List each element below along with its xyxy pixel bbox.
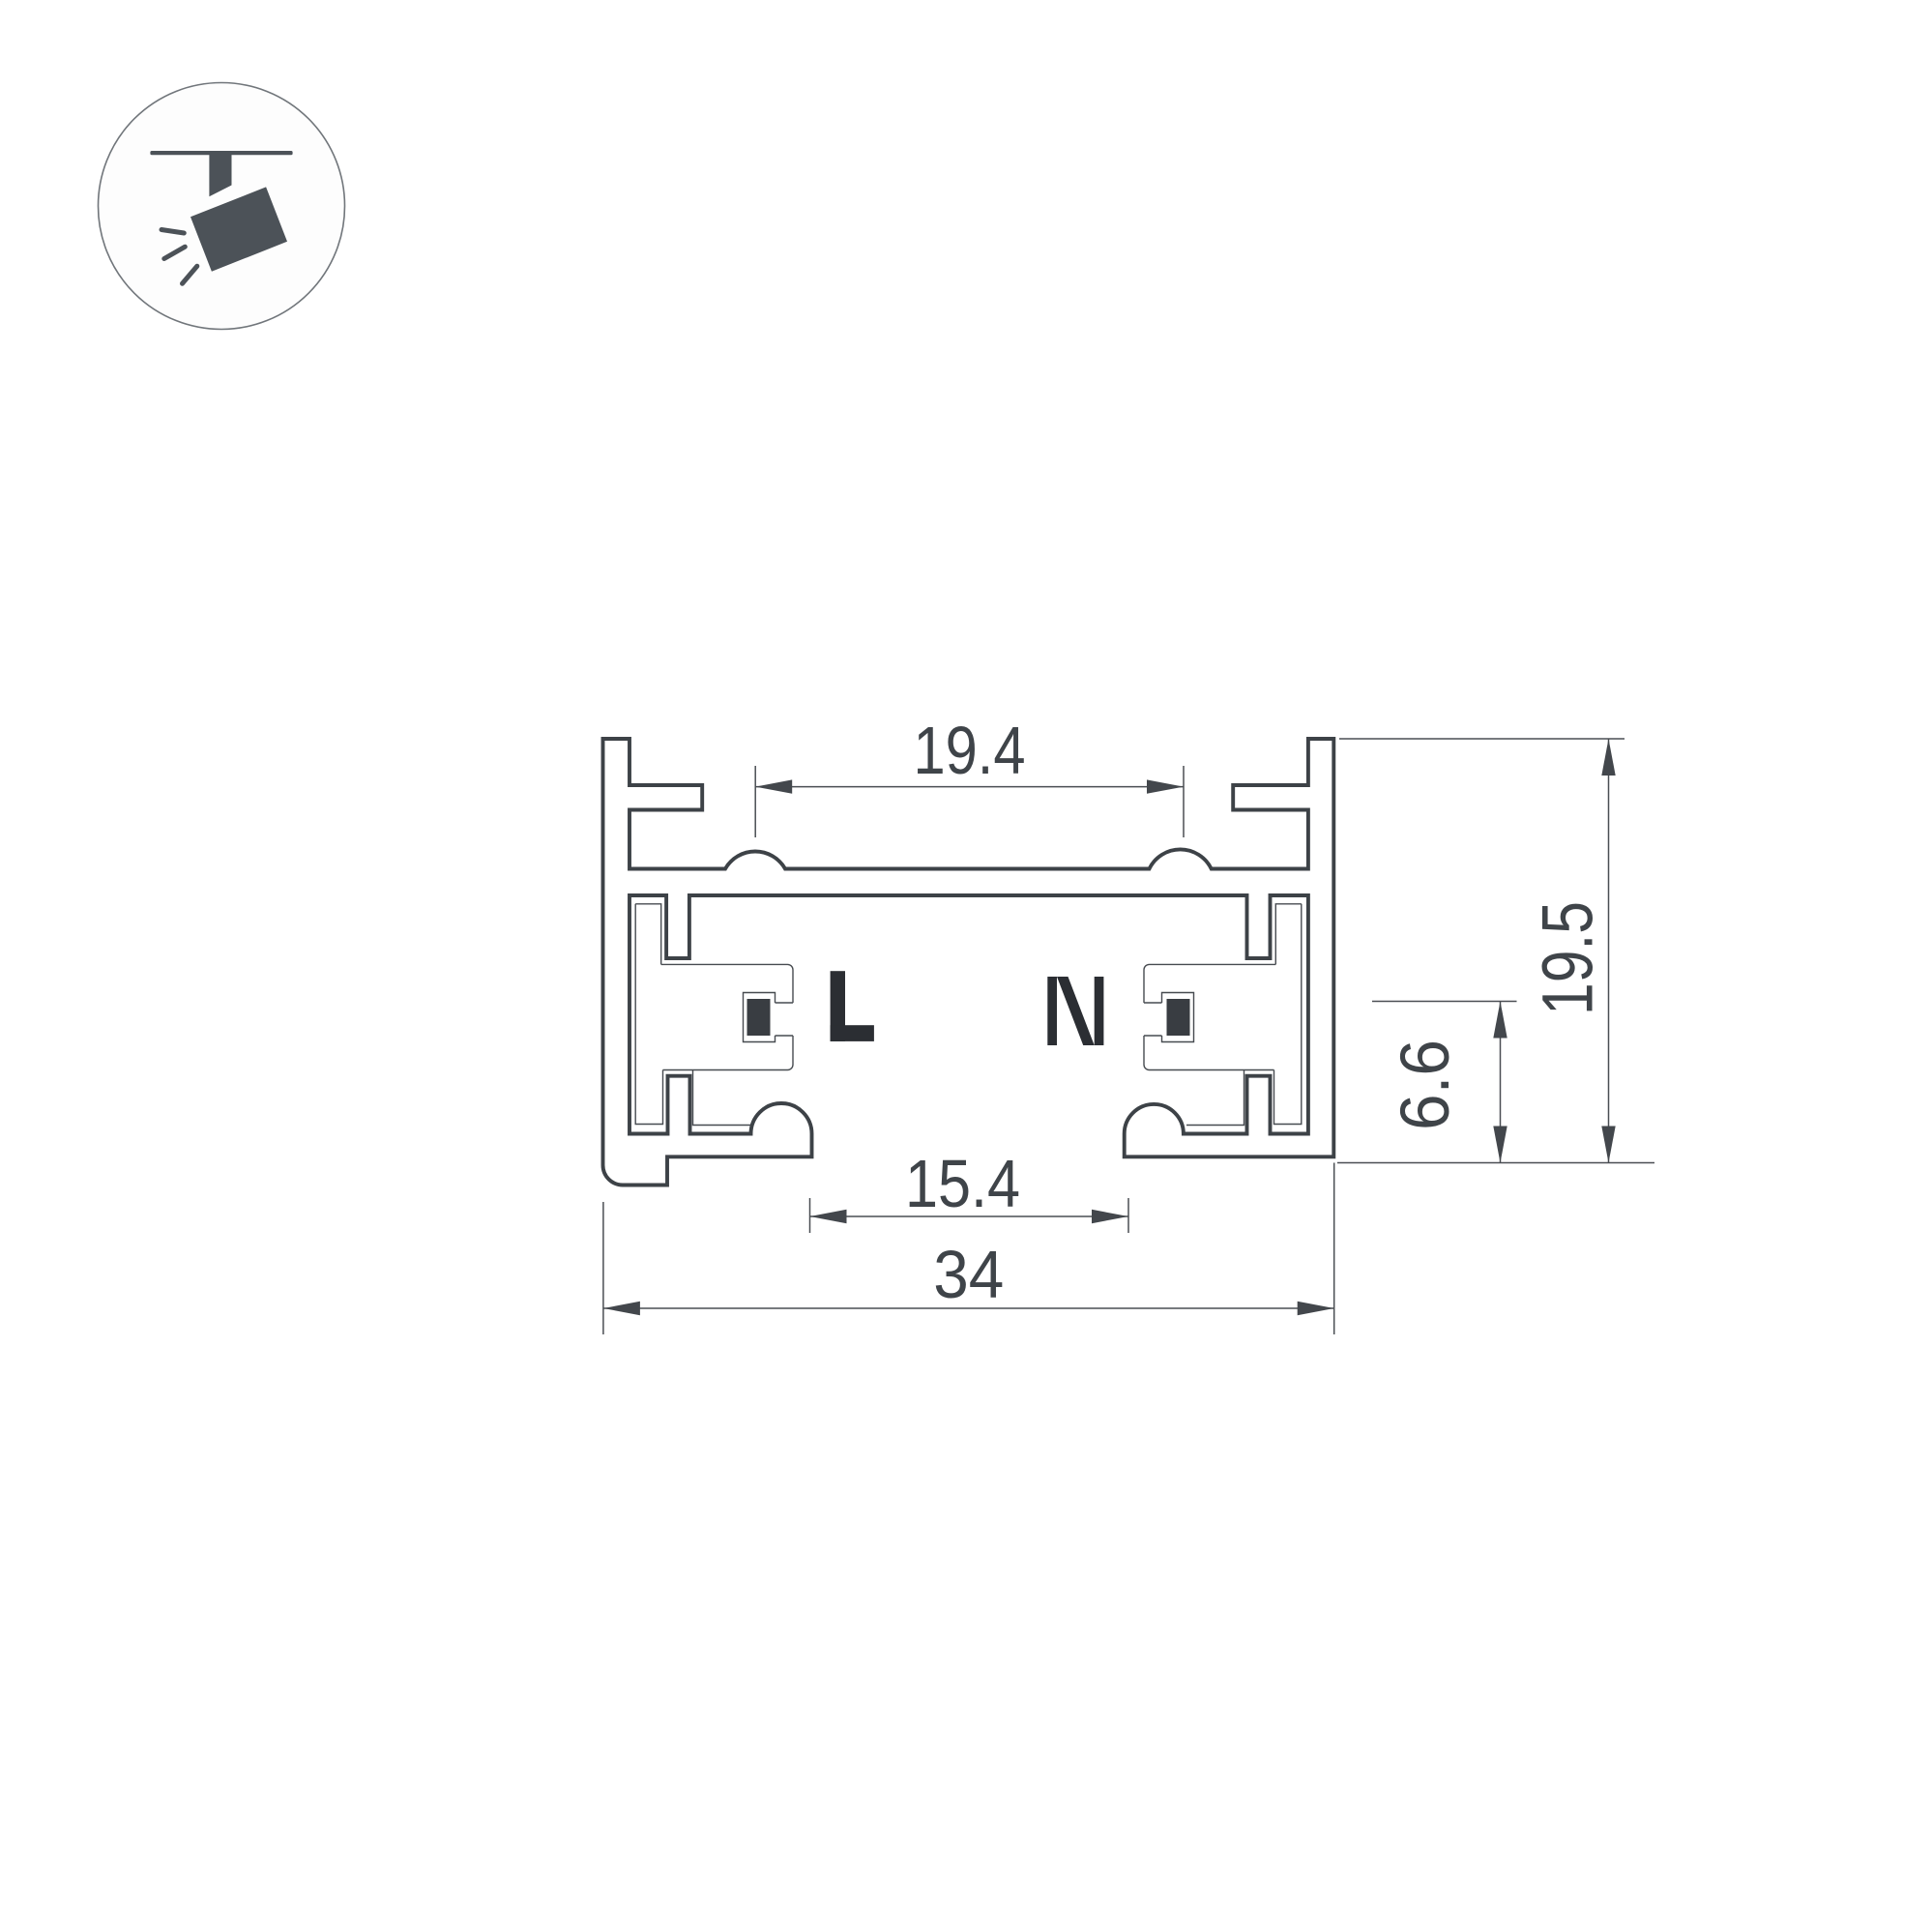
svg-text:15.4: 15.4 [905, 1146, 1020, 1221]
svg-text:19.4: 19.4 [914, 713, 1026, 788]
svg-text:6.6: 6.6 [1388, 1039, 1464, 1130]
svg-text:34: 34 [933, 1237, 1004, 1312]
svg-text:19.5: 19.5 [1528, 901, 1608, 1015]
